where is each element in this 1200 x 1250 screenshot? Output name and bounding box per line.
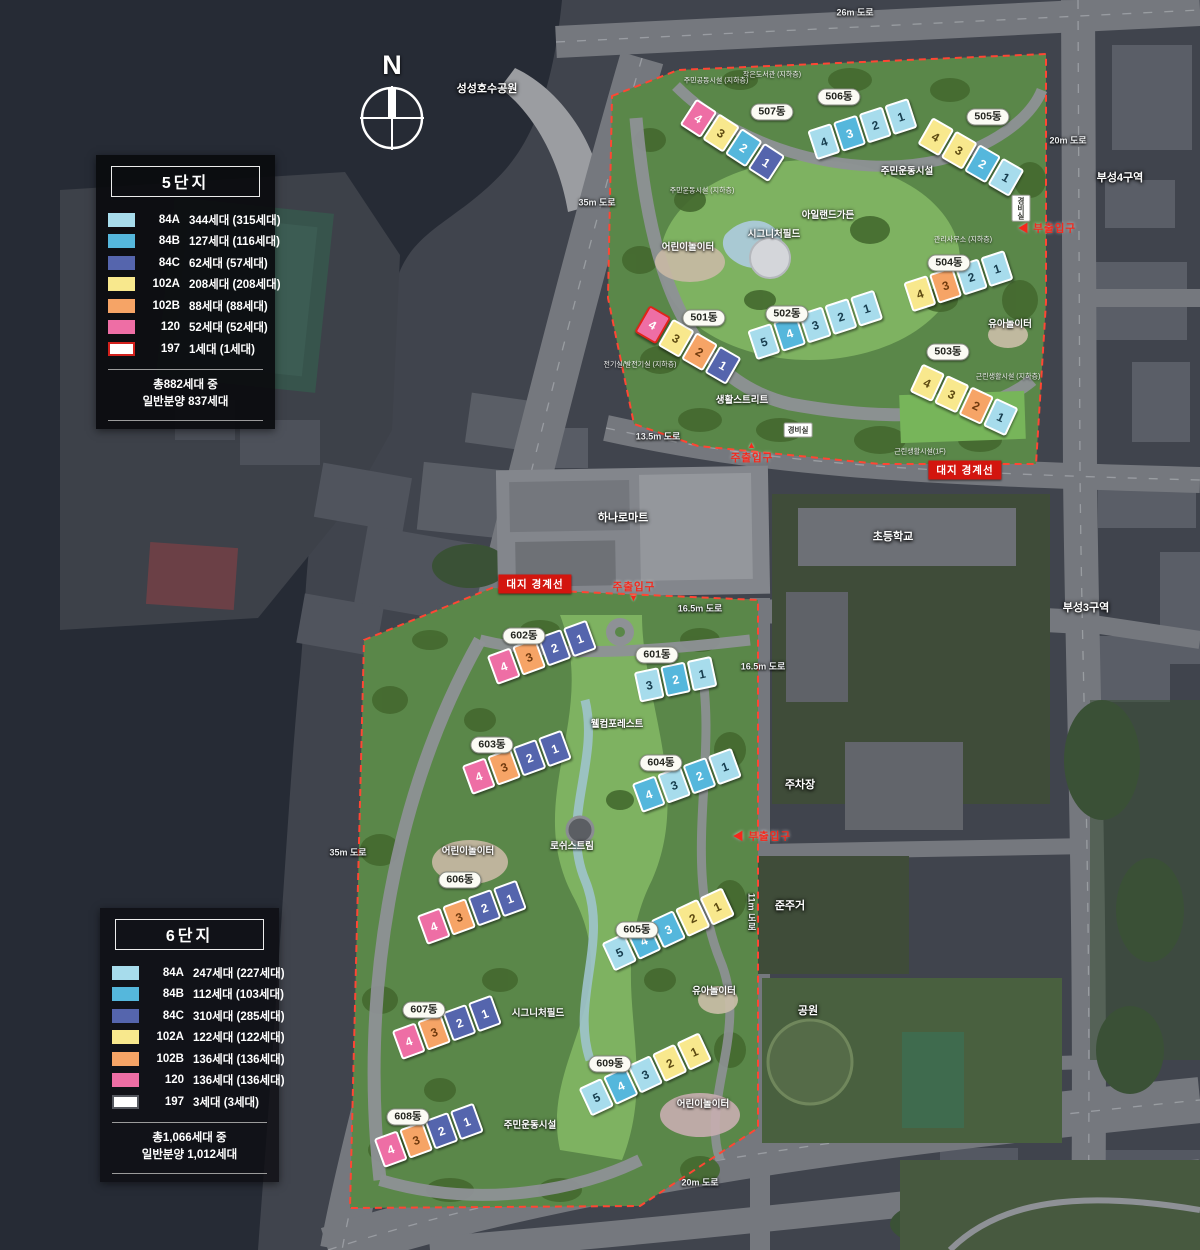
compass-north-letter: N xyxy=(355,52,429,79)
small-facility-label-4: 근린생활시설 (지하층) xyxy=(976,374,1041,383)
legend-row-102A: 102A208세대 (208세대) xyxy=(106,274,265,296)
facility-label-9: 시그니처필드 xyxy=(512,1005,564,1019)
legend-swatch-102B xyxy=(108,299,135,313)
guard-post-label-1: 경비실 xyxy=(1012,195,1031,222)
legend-swatch-120 xyxy=(108,320,135,334)
legend-row-84C: 84C310세대 (285세대) xyxy=(110,1005,269,1027)
legend-row-84A: 84A247세대 (227세대) xyxy=(110,962,269,984)
legend-swatch-84C xyxy=(108,256,135,270)
facility-label-12: 주민운동시설 xyxy=(504,1117,556,1131)
compass-rose-icon xyxy=(355,81,429,155)
legend-swatch-84A xyxy=(108,213,135,227)
legend-row-102B: 102B88세대 (88세대) xyxy=(106,295,265,317)
legend6-total: 총1,066세대 중 일반분양 1,012세대 xyxy=(112,1122,267,1175)
legend-swatch-84B xyxy=(112,987,139,1001)
guard-post-label-0: 경비실 xyxy=(784,423,813,438)
site-plan-map: 4321507동4321506동4321505동4321501동54321502… xyxy=(0,0,1200,1250)
legend-count-label: 247세대 (227세대) xyxy=(193,965,285,981)
legend-swatch-102B xyxy=(112,1052,139,1066)
facility-label-11: 어린이놀이터 xyxy=(677,1096,729,1110)
legend6-total-line1: 총1,066세대 중 xyxy=(112,1130,267,1148)
legend-type-label: 197 xyxy=(144,343,180,355)
legend-count-label: 136세대 (136세대) xyxy=(193,1072,285,1088)
area-label-4: 초등학교 xyxy=(873,528,913,544)
legend-type-label: 84B xyxy=(144,235,180,247)
legend-swatch-84A xyxy=(112,966,139,980)
legend6-total-line2: 일반분양 1,012세대 xyxy=(112,1147,267,1165)
entrance-text: 주출입구 xyxy=(613,579,656,594)
road-label-4: 16.5m 도로 xyxy=(678,602,723,615)
legend-swatch-120 xyxy=(112,1073,139,1087)
legend-type-label: 120 xyxy=(148,1074,184,1086)
road-label-5: 16.5m 도로 xyxy=(741,660,786,673)
facility-label-3: 어린이놀이터 xyxy=(662,239,714,253)
legend5-rows: 84A344세대 (315세대)84B127세대 (116세대)84C62세대 … xyxy=(106,209,265,360)
small-facility-label-0: 주민공동시설 (지하층) xyxy=(684,78,749,87)
legend-type-label: 102B xyxy=(148,1053,184,1065)
legend-swatch-197 xyxy=(112,1095,139,1109)
road-label-1: 20m 도로 xyxy=(1049,134,1086,147)
legend-count-label: 122세대 (122세대) xyxy=(193,1029,285,1045)
road-label-7: 11m 도로 xyxy=(746,893,759,931)
legend-complex5: 5단지 84A344세대 (315세대)84B127세대 (116세대)84C6… xyxy=(96,155,275,429)
entrance-text: 주출입구 xyxy=(731,450,774,465)
entrance-label-1: 주출입구▼ xyxy=(613,579,656,603)
legend-count-label: 52세대 (52세대) xyxy=(189,319,268,335)
facility-label-10: 유아놀이터 xyxy=(692,983,736,997)
legend-count-label: 3세대 (3세대) xyxy=(193,1094,259,1110)
small-facility-label-5: 근린생활시설(1F) xyxy=(894,449,945,458)
road-label-8: 20m 도로 xyxy=(681,1176,718,1189)
entrance-label-3: ◀ 부출입구 xyxy=(733,829,791,844)
legend-row-84A: 84A344세대 (315세대) xyxy=(106,209,265,231)
legend-count-label: 208세대 (208세대) xyxy=(189,276,281,292)
legend-row-84B: 84B112세대 (103세대) xyxy=(110,984,269,1006)
legend5-total: 총882세대 중 일반분양 837세대 xyxy=(108,369,263,422)
legend-row-102A: 102A122세대 (122세대) xyxy=(110,1027,269,1049)
entrance-label-0: ▲주출입구 xyxy=(731,441,774,465)
legend5-total-line2: 일반분양 837세대 xyxy=(108,394,263,412)
legend-row-197: 1971세대 (1세대) xyxy=(106,338,265,360)
small-facility-label-3: 관리사무소 (지하층) xyxy=(934,237,992,246)
legend-row-84B: 84B127세대 (116세대) xyxy=(106,231,265,253)
small-facility-label-1: 작은도서관 (지하층) xyxy=(743,72,801,81)
entrance-text: ◀ 부출입구 xyxy=(1018,221,1076,236)
facility-label-2: 시그니처필드 xyxy=(748,226,800,240)
area-label-1: 부성4구역 xyxy=(1097,169,1144,185)
legend-type-label: 102B xyxy=(144,300,180,312)
boundary-badge-0: 대지 경계선 xyxy=(928,461,1001,480)
area-label-2: 부성3구역 xyxy=(1063,599,1110,615)
facility-label-6: 웰컴포레스트 xyxy=(591,716,643,730)
area-label-0: 성성호수공원 xyxy=(457,80,518,96)
legend-type-label: 120 xyxy=(144,321,180,333)
legend6-rows: 84A247세대 (227세대)84B112세대 (103세대)84C310세대… xyxy=(110,962,269,1113)
legend6-title: 6단지 xyxy=(115,919,264,950)
legend-swatch-84B xyxy=(108,234,135,248)
legend-count-label: 310세대 (285세대) xyxy=(193,1008,285,1024)
legend-swatch-102A xyxy=(108,277,135,291)
legend-type-label: 84C xyxy=(144,257,180,269)
legend-count-label: 88세대 (88세대) xyxy=(189,298,268,314)
boundary-badge-1: 대지 경계선 xyxy=(498,575,571,594)
legend-count-label: 62세대 (57세대) xyxy=(189,255,268,271)
legend-type-label: 102A xyxy=(148,1031,184,1043)
legend-row-197: 1973세대 (3세대) xyxy=(110,1091,269,1113)
entrance-label-2: ◀ 부출입구 xyxy=(1018,221,1076,236)
legend-swatch-197 xyxy=(108,342,135,356)
compass: N xyxy=(355,52,429,160)
small-facility-label-6: 전기실/발전기실 (지하층) xyxy=(604,362,677,371)
small-facility-label-2: 주민운동시설 (지하층) xyxy=(670,188,735,197)
legend-row-120: 120136세대 (136세대) xyxy=(110,1070,269,1092)
road-label-2: 35m 도로 xyxy=(578,196,615,209)
area-label-5: 주차장 xyxy=(785,776,815,792)
legend-type-label: 84A xyxy=(148,967,184,979)
facility-label-8: 어린이놀이터 xyxy=(442,843,494,857)
legend-row-84C: 84C62세대 (57세대) xyxy=(106,252,265,274)
legend-type-label: 102A xyxy=(144,278,180,290)
facility-label-7: 로쉬스트림 xyxy=(550,838,594,852)
road-label-0: 26m 도로 xyxy=(836,6,873,19)
legend-complex6: 6단지 84A247세대 (227세대)84B112세대 (103세대)84C3… xyxy=(100,908,279,1182)
facility-label-5: 생활스트리트 xyxy=(716,392,768,406)
legend5-title: 5단지 xyxy=(111,166,260,197)
legend-type-label: 84B xyxy=(148,988,184,1000)
entrance-arrow-icon: ▼ xyxy=(629,594,639,603)
legend-count-label: 344세대 (315세대) xyxy=(189,212,281,228)
area-label-3: 하나로마트 xyxy=(598,509,649,525)
legend-count-label: 127세대 (116세대) xyxy=(189,233,280,249)
legend-type-label: 197 xyxy=(148,1096,184,1108)
entrance-arrow-icon: ▲ xyxy=(747,441,757,450)
road-label-3: 13.5m 도로 xyxy=(636,430,681,443)
legend5-total-line1: 총882세대 중 xyxy=(108,377,263,395)
legend-count-label: 1세대 (1세대) xyxy=(189,341,255,357)
facility-label-0: 주민운동시설 xyxy=(881,163,933,177)
legend-swatch-102A xyxy=(112,1030,139,1044)
facility-label-1: 아일랜드가든 xyxy=(802,207,854,221)
entrance-text: ◀ 부출입구 xyxy=(733,829,791,844)
area-label-6: 준주거 xyxy=(775,897,805,913)
legend-count-label: 112세대 (103세대) xyxy=(193,986,284,1002)
legend-row-102B: 102B136세대 (136세대) xyxy=(110,1048,269,1070)
area-label-7: 공원 xyxy=(798,1002,818,1018)
legend-type-label: 84C xyxy=(148,1010,184,1022)
road-label-6: 35m 도로 xyxy=(329,846,366,859)
legend-type-label: 84A xyxy=(144,214,180,226)
legend-row-120: 12052세대 (52세대) xyxy=(106,317,265,339)
facility-label-4: 유아놀이터 xyxy=(988,316,1032,330)
legend-count-label: 136세대 (136세대) xyxy=(193,1051,285,1067)
legend-swatch-84C xyxy=(112,1009,139,1023)
